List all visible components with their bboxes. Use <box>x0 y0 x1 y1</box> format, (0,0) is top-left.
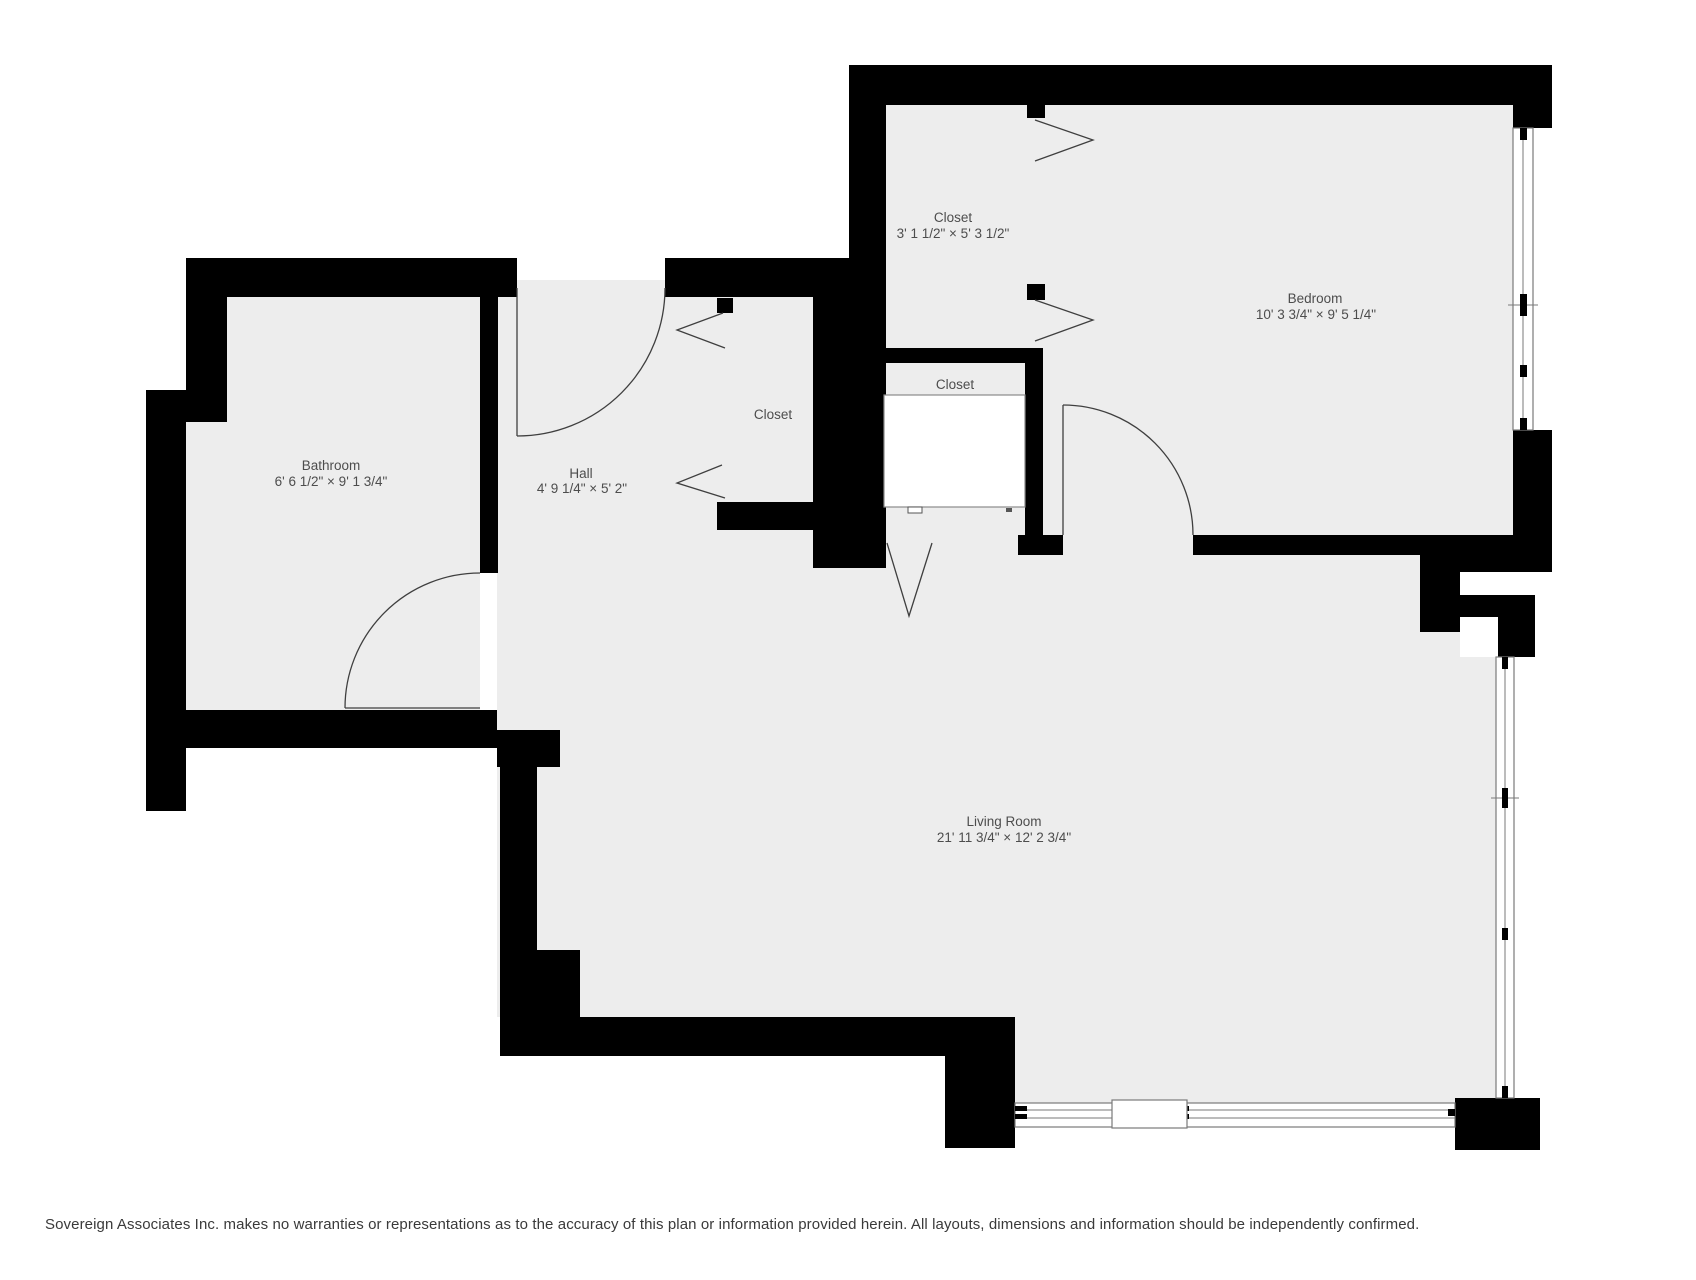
disclaimer-text: Sovereign Associates Inc. makes no warra… <box>45 1216 1419 1233</box>
bathroom-label: Bathroom <box>302 458 361 473</box>
wall-step-vertical <box>1420 555 1460 632</box>
wall-bottom-band <box>580 1017 1015 1056</box>
wall-top-exterior <box>849 65 1552 105</box>
wall-living-west <box>500 730 537 1017</box>
bedroom-door-passage-floor <box>1063 535 1193 555</box>
wall-topcloset-stub2 <box>1027 284 1045 300</box>
wall-notch-band <box>1457 595 1535 617</box>
bathroom-dims: 6' 6 1/2" × 9' 1 3/4" <box>275 474 388 489</box>
wall-center-thick <box>813 297 886 568</box>
living-room-dims: 21' 11 3/4" × 12' 2 3/4" <box>937 830 1071 845</box>
wall-hallcloset-south <box>717 502 813 530</box>
wall-hallcloset-stub-top <box>717 298 733 313</box>
living-room-floor-south <box>1015 1017 1420 1103</box>
living-room-floor <box>497 555 1420 1017</box>
floor-plan-page: Closet 3' 1 1/2" × 5' 3 1/2" Bedroom 10'… <box>0 0 1696 1280</box>
living-room-south-window <box>1015 1100 1455 1128</box>
wall-entrycloset-foot <box>1018 535 1063 555</box>
wall-bathroom-west-outer <box>146 390 186 811</box>
hall-label: Hall <box>569 466 592 481</box>
entry-closet-hardware <box>908 507 922 513</box>
bathroom-floor <box>227 297 480 710</box>
wall-entrycloset-right <box>1025 348 1043 535</box>
wall-bedroom-south <box>1193 535 1552 555</box>
south-window-door-panel <box>1112 1100 1187 1128</box>
wall-topcloset-stub1 <box>1027 105 1045 118</box>
wall-entrycloset-top <box>882 348 1025 363</box>
wall-ne-corner <box>1513 105 1552 128</box>
bathroom-floor-west <box>186 422 227 710</box>
bedroom-dims: 10' 3 3/4" × 9' 5 1/4" <box>1256 307 1376 322</box>
closet-top-dims: 3' 1 1/2" × 5' 3 1/2" <box>897 226 1010 241</box>
closet-top-label: Closet <box>934 210 973 225</box>
wall-above-east-window <box>1498 617 1535 657</box>
wall-step-sw <box>497 730 560 767</box>
entry-closet-fixture <box>884 395 1025 513</box>
wall-bathroom-east <box>480 297 498 573</box>
entry-closet-hardware-dot <box>1006 508 1012 512</box>
floor-plan-svg: Closet 3' 1 1/2" × 5' 3 1/2" Bedroom 10'… <box>0 0 1696 1280</box>
bedroom-window <box>1508 128 1538 430</box>
wall-se-corner <box>1455 1098 1540 1150</box>
wall-top-west-band <box>186 258 517 297</box>
living-room-floor-east <box>1420 657 1496 1103</box>
closet-hall-label: Closet <box>754 407 793 422</box>
hall-dims: 4' 9 1/4" × 5' 2" <box>537 481 627 496</box>
living-room-floor-ne <box>1420 632 1460 657</box>
bedroom-label: Bedroom <box>1288 291 1343 306</box>
wall-bathroom-south <box>146 710 497 748</box>
living-room-label: Living Room <box>966 814 1041 829</box>
closet-entry-label: Closet <box>936 377 975 392</box>
wall-entry-band-east <box>665 258 886 297</box>
entry-closet-box <box>884 395 1025 507</box>
